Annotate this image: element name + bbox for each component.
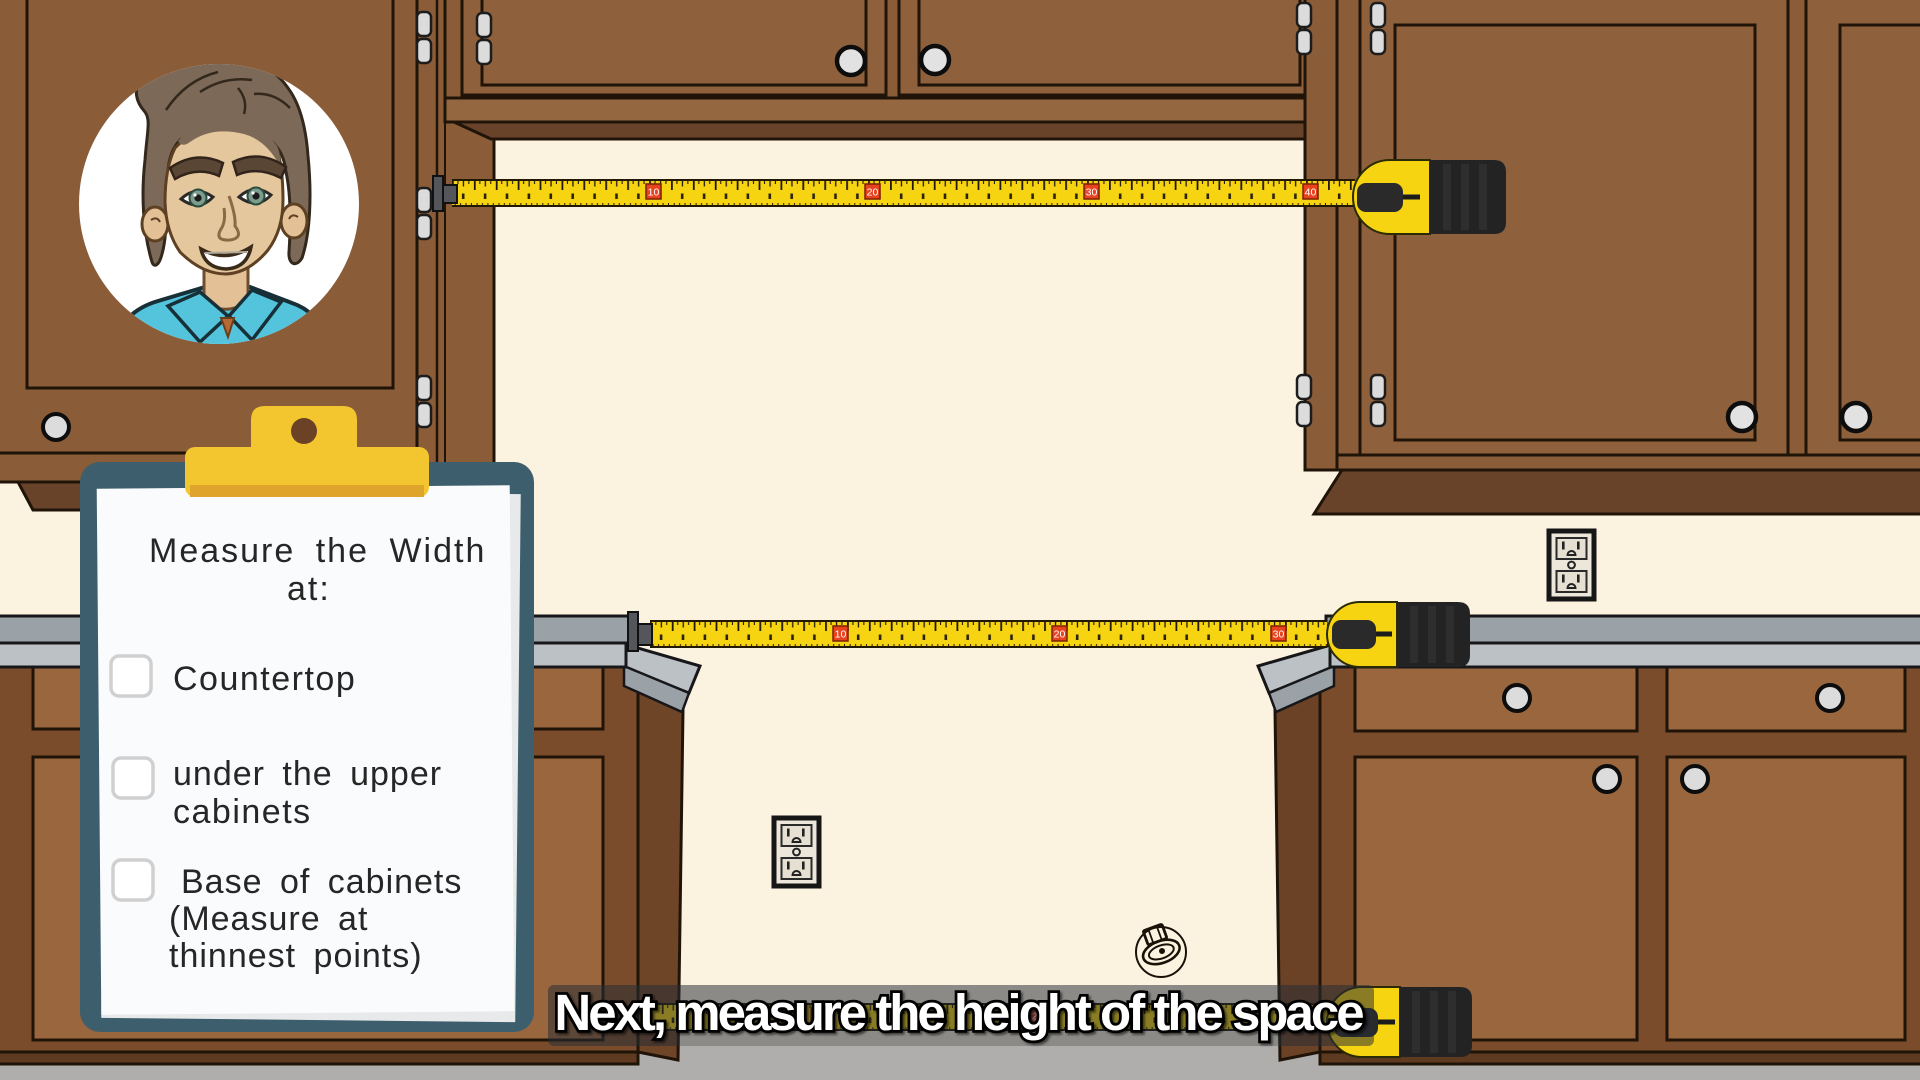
svg-text:Next, measure the height of th: Next, measure the height of the space	[554, 984, 1363, 1041]
svg-text:10: 10	[835, 629, 847, 641]
svg-text:10: 10	[648, 187, 660, 199]
svg-text:thinnest points): thinnest points)	[169, 937, 423, 975]
svg-text:40: 40	[1305, 187, 1317, 199]
svg-text:Measure the Width: Measure the Width	[149, 532, 486, 570]
svg-text:20: 20	[867, 187, 879, 199]
svg-text:(Measure at: (Measure at	[169, 900, 368, 938]
svg-text:Countertop: Countertop	[173, 660, 356, 698]
svg-text:at:: at:	[287, 570, 331, 608]
svg-text:cabinets: cabinets	[173, 793, 312, 831]
svg-text:under the upper: under the upper	[173, 755, 442, 793]
svg-text:30: 30	[1273, 629, 1285, 641]
svg-text:30: 30	[1086, 187, 1098, 199]
svg-text:Base of cabinets: Base of cabinets	[181, 863, 462, 901]
svg-text:20: 20	[1054, 629, 1066, 641]
